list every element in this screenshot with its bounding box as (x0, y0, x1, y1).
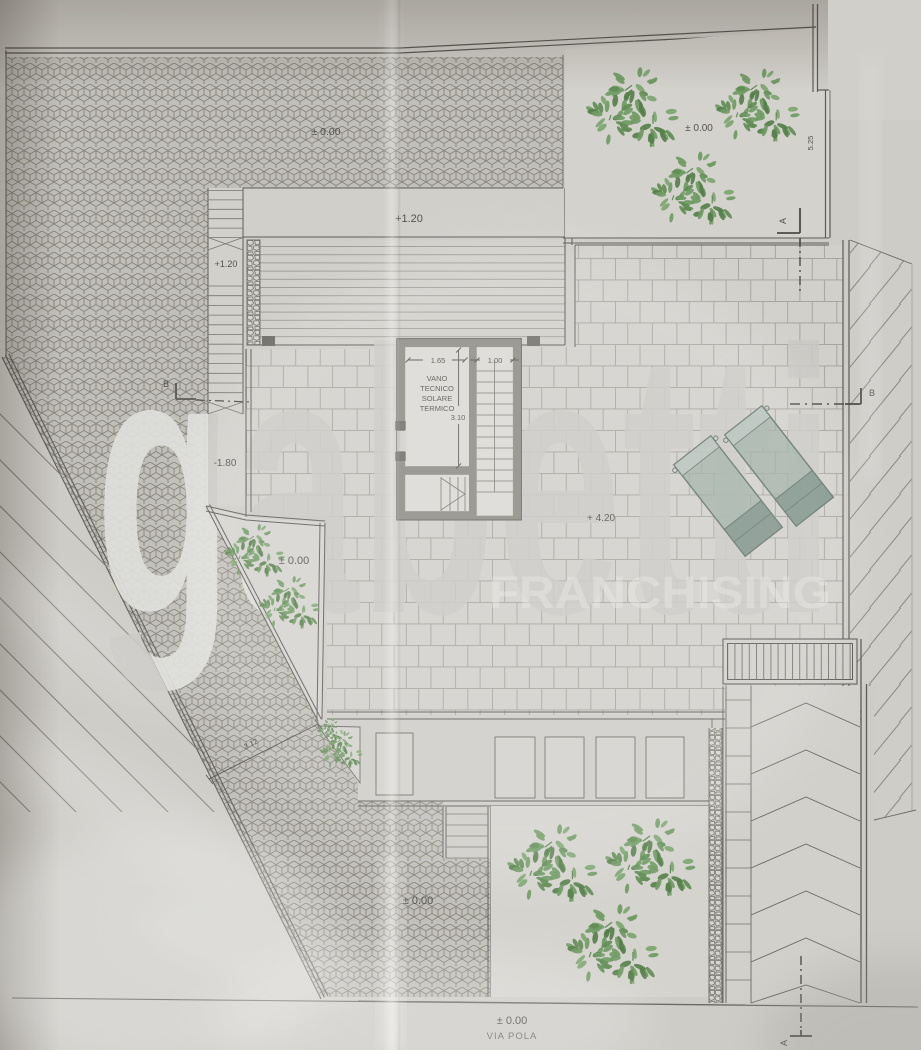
svg-text:± 0.00: ± 0.00 (685, 123, 713, 134)
svg-text:± 0.00: ± 0.00 (403, 895, 434, 907)
svg-text:+1.20: +1.20 (215, 259, 238, 269)
svg-text:5.25: 5.25 (806, 136, 815, 151)
svg-text:A: A (778, 218, 788, 224)
svg-text:± 0.00: ± 0.00 (311, 126, 340, 138)
